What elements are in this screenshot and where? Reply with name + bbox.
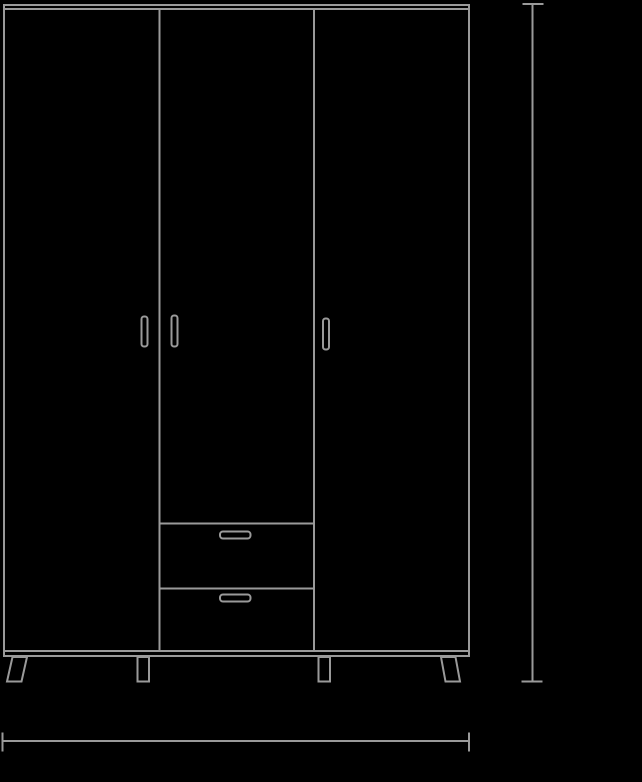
background bbox=[0, 0, 642, 782]
canvas bbox=[0, 0, 642, 782]
wardrobe-technical-drawing bbox=[0, 0, 642, 782]
